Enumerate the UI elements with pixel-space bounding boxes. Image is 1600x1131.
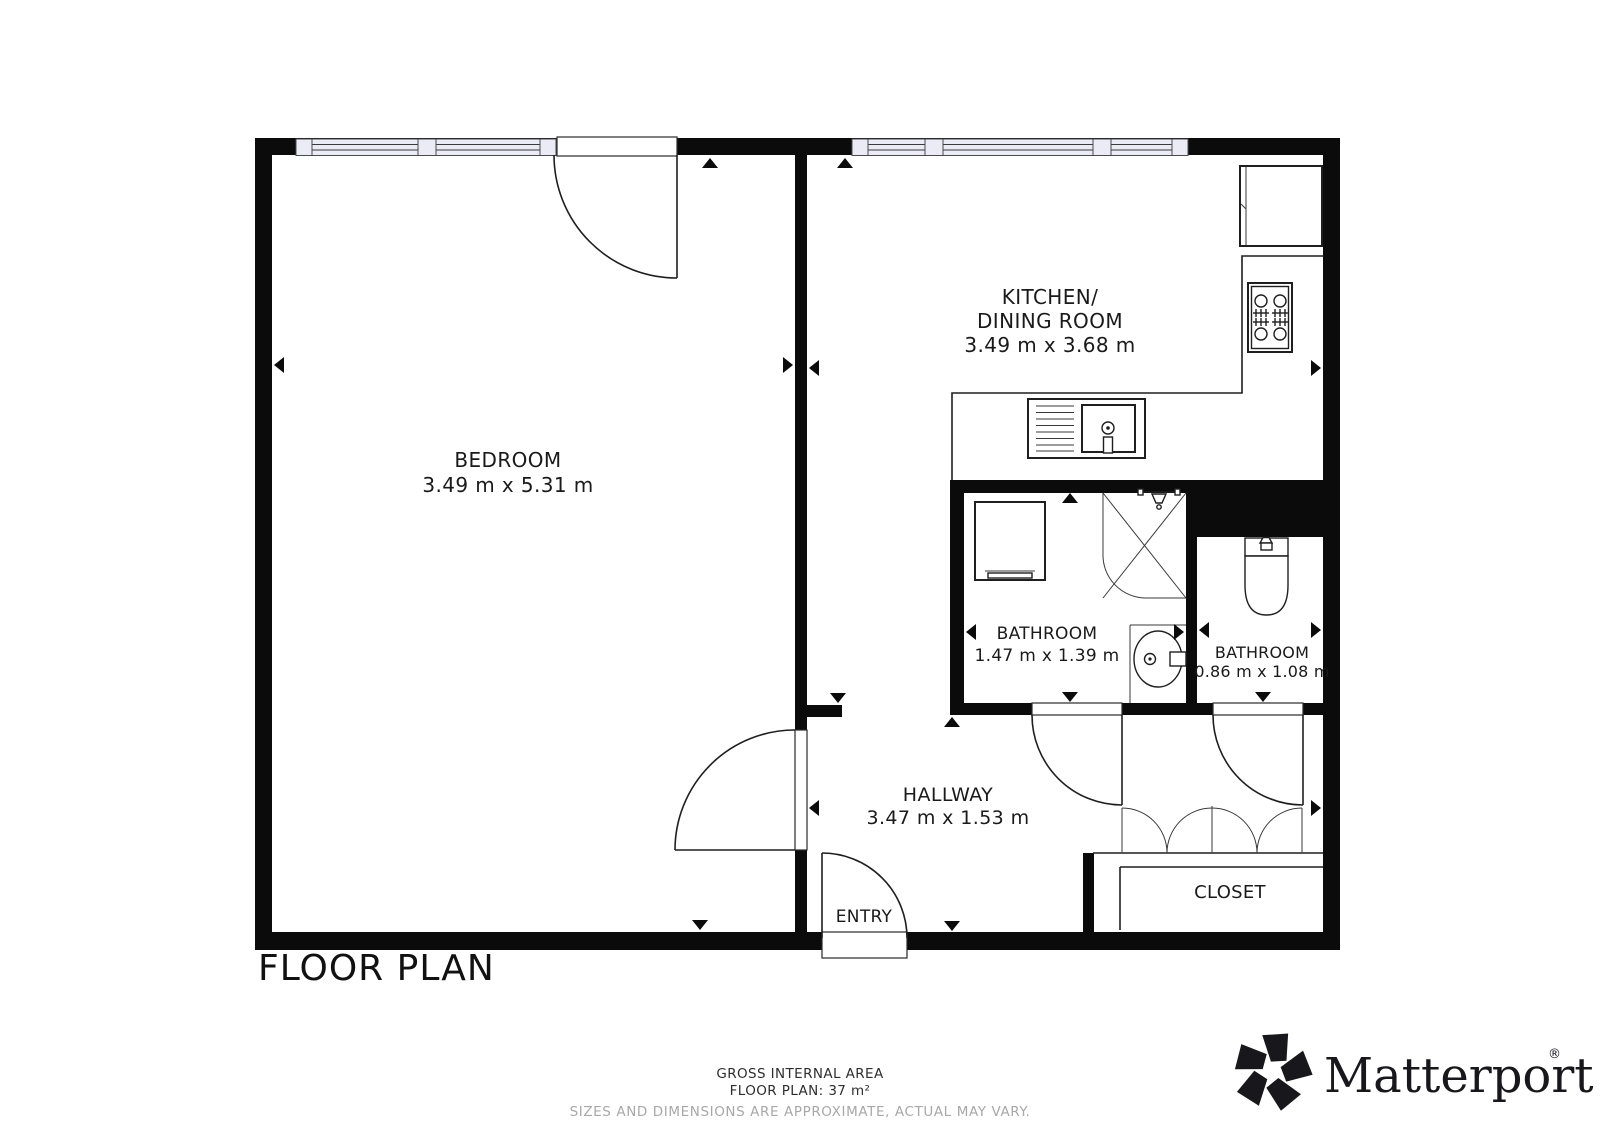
hallway-label: HALLWAY: [903, 784, 993, 806]
closet-bifold-doors: [1093, 806, 1323, 930]
bathroom-main-door-swing-arc: [1032, 715, 1122, 805]
bathroom-small-label: BATHROOM: [1215, 643, 1309, 662]
shower: [1103, 489, 1186, 598]
page-title: FLOOR PLAN: [258, 948, 495, 989]
bathroom-main-bottom-wall-left: [950, 703, 1032, 715]
balcony-door: [554, 137, 677, 278]
floor-plan-area-value: FLOOR PLAN: 37 m²: [730, 1083, 871, 1099]
bedroom-label: BEDROOM: [454, 448, 561, 472]
bathroom-bottom-wall-middle: [1122, 703, 1213, 715]
bathroom-small-bottom-wall-right: [1303, 703, 1325, 715]
bathroom-main-left-marker: [966, 624, 976, 640]
closet-label: CLOSET: [1194, 882, 1266, 903]
bedroom-right-marker: [783, 357, 793, 373]
bathroom-small-bottom-marker: [1255, 692, 1271, 702]
kitchen-top-marker: [837, 158, 853, 168]
kitchen-bottom-marker: [830, 693, 846, 703]
bathroom-main-left-wall: [950, 480, 964, 715]
bathroom-main-label: BATHROOM: [997, 624, 1098, 644]
bedroom-divider-wall-upper: [795, 155, 807, 730]
bedroom-window: [296, 139, 556, 156]
refrigerator: [1240, 166, 1322, 246]
hallway-top-marker: [944, 717, 960, 727]
hallway-wall-stub: [807, 705, 842, 717]
matterport-logo: Matterport ®: [1221, 1023, 1594, 1121]
kitchen-label-line2: DINING ROOM: [977, 309, 1123, 333]
bathroom-main-right-marker: [1174, 624, 1184, 640]
bedroom-bottom-marker: [692, 920, 708, 930]
bathroom-small-left-marker: [1199, 622, 1209, 638]
entry-label: ENTRY: [836, 907, 893, 927]
disclaimer-text: SIZES AND DIMENSIONS ARE APPROXIMATE, AC…: [570, 1104, 1031, 1120]
kitchen-dimensions: 3.49 m x 3.68 m: [964, 333, 1135, 357]
bedroom-door: [675, 730, 807, 850]
gross-internal-area-label: GROSS INTERNAL AREA: [716, 1066, 884, 1082]
bedroom-dimensions: 3.49 m x 5.31 m: [422, 473, 593, 497]
floor-plan-page: BEDROOM 3.49 m x 5.31 m KITCHEN/ DINING …: [0, 0, 1600, 1131]
bathroom-main-door: [1032, 703, 1122, 805]
bathroom-small-dimensions: 0.86 m x 1.08 m: [1194, 662, 1329, 681]
kitchen-window: [852, 139, 1188, 156]
kitchen-right-marker: [1311, 360, 1321, 376]
kitchen-left-marker: [809, 360, 819, 376]
entry-door: [822, 853, 907, 958]
balcony-door-swing-arc: [554, 155, 677, 278]
footer-notes: GROSS INTERNAL AREA FLOOR PLAN: 37 m² SI…: [570, 1066, 1031, 1120]
bathroom-small-door-swing-arc: [1213, 715, 1303, 805]
shower-head-icon: [1138, 489, 1180, 509]
hallway-bottom-marker: [944, 921, 960, 931]
bathroom-main-dimensions: 1.47 m x 1.39 m: [975, 646, 1120, 666]
bathroom-small-door: [1213, 703, 1303, 805]
hallway-right-marker: [1311, 800, 1321, 816]
bathroom-main-top-marker: [1062, 493, 1078, 503]
closet-wall-stub: [1083, 853, 1094, 932]
bedroom-left-marker: [274, 357, 284, 373]
bathroom-main-bottom-marker: [1062, 692, 1078, 702]
kitchen-label-line1: KITCHEN/: [1002, 285, 1099, 309]
bathrooms-divider-wall: [1186, 493, 1197, 715]
toilet: [1245, 538, 1288, 616]
bedroom-door-swing-arc: [675, 730, 795, 850]
bedroom-divider-wall-lower: [795, 850, 807, 932]
registered-trademark-symbol: ®: [1548, 1047, 1561, 1062]
bathroom-small-duct-block: [1186, 480, 1325, 537]
floor-plan-drawing: BEDROOM 3.49 m x 5.31 m KITCHEN/ DINING …: [0, 0, 1600, 1131]
kitchen-sink: [1028, 399, 1145, 458]
bedroom-top-marker: [702, 158, 718, 168]
hallway-left-marker: [809, 800, 819, 816]
stove: [1248, 283, 1292, 352]
bathroom-small-right-marker: [1311, 622, 1321, 638]
hallway-dimensions: 3.47 m x 1.53 m: [866, 807, 1029, 829]
matterport-pinwheel-icon: [1221, 1023, 1321, 1121]
washing-machine: [975, 502, 1045, 580]
